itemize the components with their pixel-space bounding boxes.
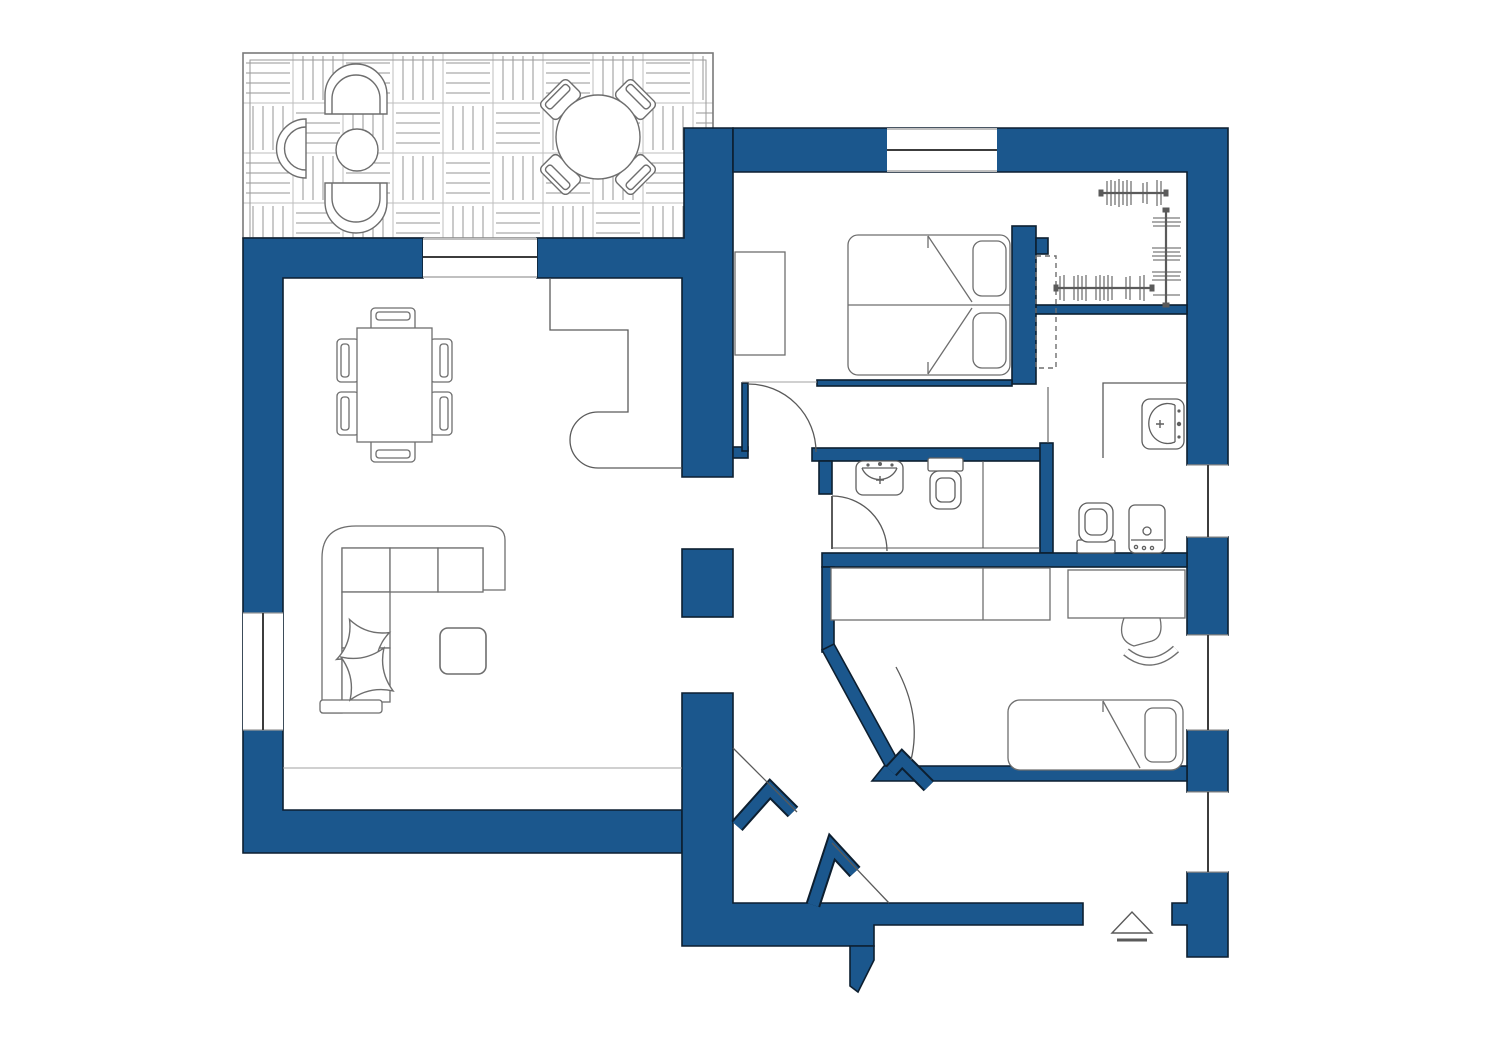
desk-chair xyxy=(1122,618,1176,661)
window-east-3 xyxy=(1187,792,1228,872)
wall-east-2 xyxy=(1187,730,1228,792)
master-bedroom-furniture xyxy=(735,235,1056,375)
single-bed xyxy=(1008,700,1183,770)
bathroom-door-arc xyxy=(832,496,887,551)
master-door-leaf xyxy=(742,383,748,451)
bathroom-fixtures xyxy=(856,458,963,509)
double-bed xyxy=(848,235,1010,375)
floor-plan-svg xyxy=(0,0,1500,1060)
dining-chair xyxy=(337,339,359,382)
kids-room-door-arc xyxy=(896,667,914,760)
wall-kidsroom-north xyxy=(822,553,1187,567)
kitchen-niche-wall xyxy=(550,278,682,468)
wall-bedroom-south-thin xyxy=(817,380,1012,386)
dining-set xyxy=(337,308,452,462)
clothes-rack-top xyxy=(1099,179,1168,207)
toilet xyxy=(928,458,963,509)
window-bedroom-north xyxy=(887,128,997,172)
window-terrace-door xyxy=(423,238,537,278)
wall-kidsroom-diagonal xyxy=(822,644,901,773)
wall-entry-jamb-spike xyxy=(850,946,874,992)
dining-chair xyxy=(430,392,452,435)
desk-left xyxy=(831,568,1050,620)
bathroom2-fixtures xyxy=(1077,399,1184,553)
bed-pillow xyxy=(973,313,1006,368)
wall-headboard-step xyxy=(1036,238,1048,254)
clothes-rack-right xyxy=(1152,208,1181,307)
entry-door-leaf-2 xyxy=(832,843,889,903)
window-east-1 xyxy=(1187,465,1228,537)
terrace-paving xyxy=(243,53,713,238)
master-bedroom-door-arc xyxy=(748,384,816,452)
terrace-dining-set xyxy=(539,78,658,197)
entrance-marker xyxy=(1112,912,1152,940)
clothes-rack-bottom xyxy=(1054,275,1154,301)
washing-machine xyxy=(1129,505,1165,553)
side-table xyxy=(336,129,378,171)
wall-hall-column xyxy=(682,549,733,617)
bed-pillow xyxy=(1145,708,1176,762)
toilet-2 xyxy=(1077,503,1115,553)
corner-sofa xyxy=(320,526,505,713)
entrance-triangle-icon xyxy=(1112,912,1152,933)
window-living-west xyxy=(243,613,283,730)
window-east-2 xyxy=(1187,635,1228,730)
living-room-furniture xyxy=(320,308,505,713)
terrace xyxy=(243,53,713,238)
wall-east-entry-block xyxy=(1172,872,1228,957)
wall-headboard-stub xyxy=(1012,226,1036,384)
wall-bathroom2-west xyxy=(1040,443,1053,553)
bed-pillow xyxy=(973,241,1006,296)
closet-racks xyxy=(1054,179,1181,307)
dining-chair xyxy=(430,339,452,382)
floor-plan-canvas xyxy=(0,0,1500,1060)
coffee-table xyxy=(440,628,486,674)
round-dining-table xyxy=(556,95,640,179)
desk-right xyxy=(1068,570,1185,618)
dresser xyxy=(735,252,785,355)
dining-chair xyxy=(337,392,359,435)
dining-table xyxy=(357,328,432,442)
washbasin xyxy=(856,461,903,495)
washbasin-2 xyxy=(1142,399,1184,449)
wall-east-1 xyxy=(1187,537,1228,635)
wall-bathroom-west-stub xyxy=(819,461,832,494)
